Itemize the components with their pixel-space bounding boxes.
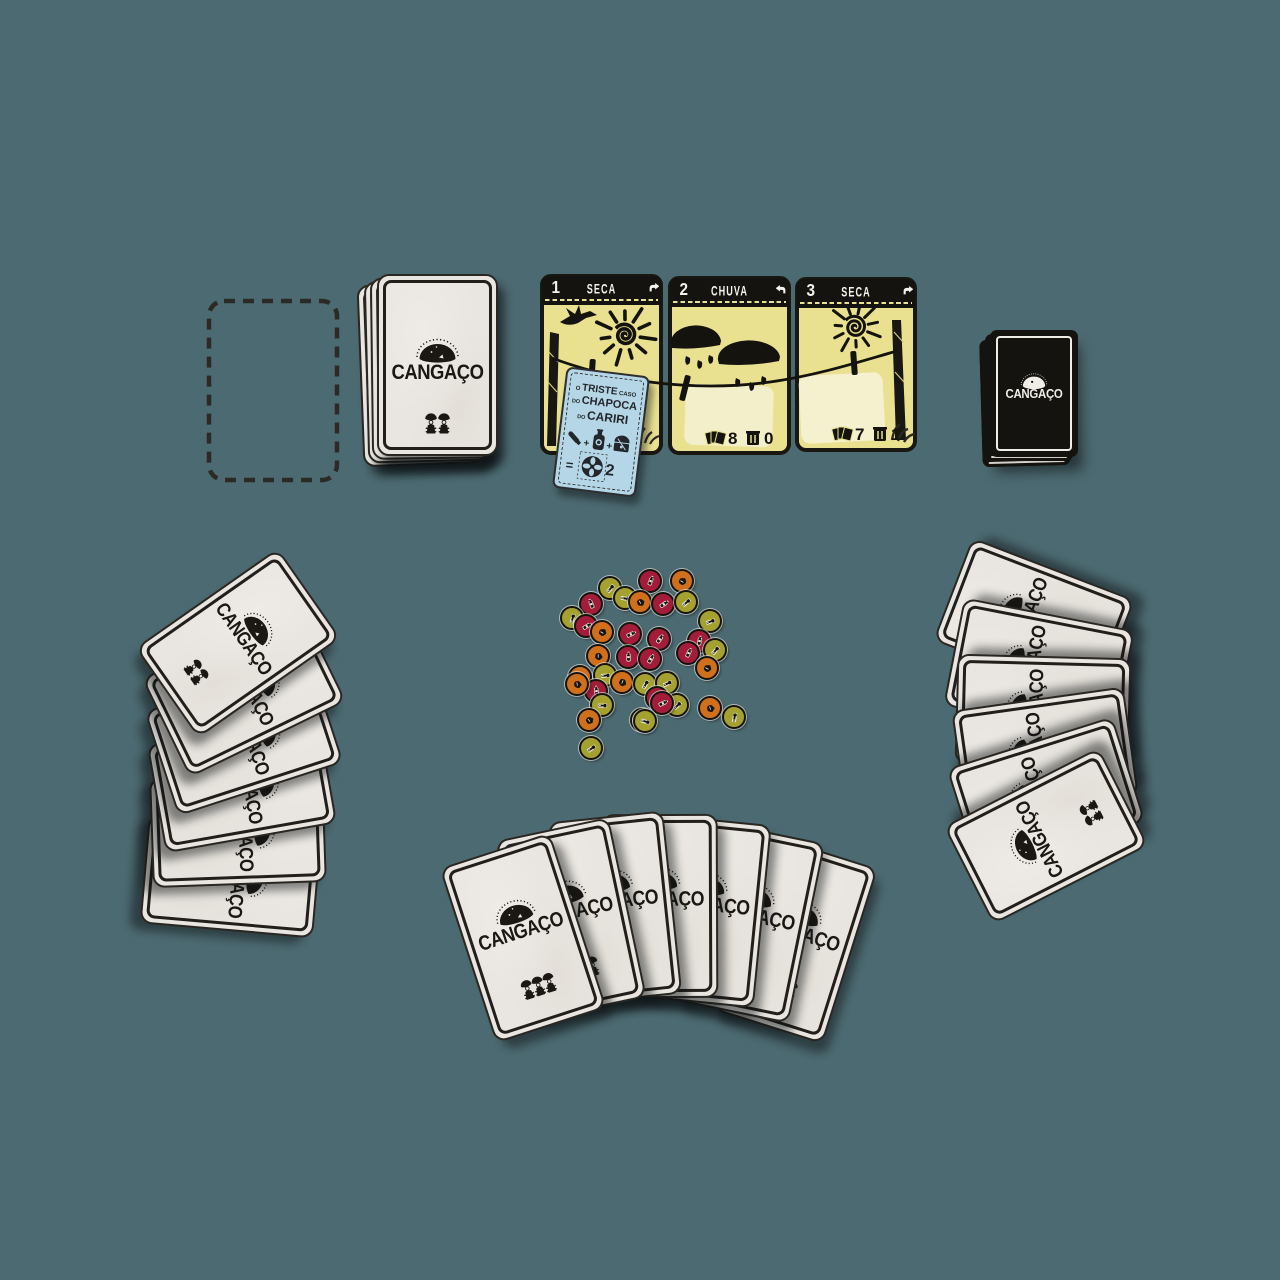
svg-text:2: 2 bbox=[604, 462, 615, 480]
svg-text:=: = bbox=[565, 457, 575, 473]
svg-text:8: 8 bbox=[728, 429, 737, 448]
svg-text:7: 7 bbox=[855, 425, 864, 444]
svg-text:+: + bbox=[606, 441, 613, 453]
svg-text:+: + bbox=[583, 438, 590, 450]
svg-text:0: 0 bbox=[764, 429, 773, 448]
svg-text:1: 1 bbox=[891, 425, 900, 444]
svg-text:CANGAÇO: CANGAÇO bbox=[1005, 386, 1062, 401]
